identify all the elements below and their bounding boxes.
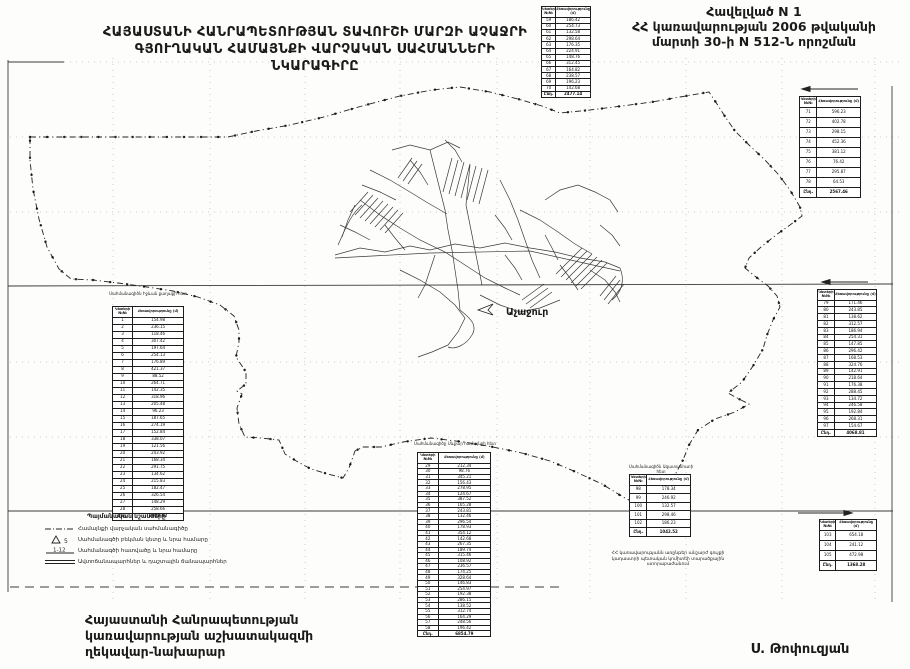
right-small-table-caption: Սահմանագիծն Ազատամուտի հետ	[625, 465, 697, 474]
distance-cell: 295.87	[817, 167, 861, 177]
table-row: 84254.31	[818, 334, 877, 341]
distance-cell: 264.71	[133, 380, 184, 387]
annex-line3: մարտի 30-ի N 512-Ն որոշման	[600, 34, 908, 49]
point-number-cell: Կետերի №№	[113, 307, 133, 318]
table-row: 99246.92	[630, 494, 691, 503]
point-number-cell: Ընդ.	[818, 429, 835, 436]
table-row: 25182.47	[113, 485, 184, 492]
point-number-cell: Կետերի №№	[800, 97, 817, 108]
point-number-cell: Կետերի №№	[820, 520, 836, 531]
point-number-cell: 87	[818, 354, 835, 361]
distance-cell: 268.31	[834, 416, 876, 423]
coordinate-table-right-upper: Կետերի №№Հեռավորությունը (մ)71596.237240…	[799, 96, 861, 198]
distance-cell: 288.45	[834, 388, 876, 395]
annex-reference: Հավելված N 1 ՀՀ կառավարության 2006 թվակա…	[600, 4, 908, 49]
table-row: 988.52	[113, 373, 184, 380]
table-row: Ընդ.1368.28	[820, 560, 877, 570]
coordinate-table-top-center: Կետերի №№Հեռավորությունը (մ)59186.426025…	[541, 6, 591, 98]
table-row: 86296.42	[818, 348, 877, 355]
distance-cell: Հեռավորությունը (մ)	[133, 307, 184, 318]
point-number-cell: Ընդ.	[630, 528, 647, 537]
coordinate-table: Կետերի №№Հեռավորությունը (մ)71596.237240…	[799, 96, 861, 198]
point-number-cell: 78	[800, 177, 817, 187]
distance-cell: Հեռավորությունը (մ)	[556, 7, 591, 18]
coordinate-table: Կետերի №№Հեռավորությունը (մ)103654.18104…	[819, 519, 877, 571]
point-number-cell: Ընդ.	[800, 187, 817, 197]
point-number-cell: 7	[113, 359, 133, 366]
table-row: Ընդ.6854.79	[418, 631, 491, 637]
point-number-cell: 9	[113, 373, 133, 380]
distance-cell: 142.91	[834, 368, 876, 375]
point-number-cell: 74	[800, 137, 817, 147]
distance-cell: 168.34	[133, 457, 184, 464]
table-row: 10264.71	[113, 380, 184, 387]
table-row: 26326.54	[113, 492, 184, 499]
point-number-cell: 93	[818, 395, 835, 402]
distance-cell: 324.76	[834, 361, 876, 368]
table-row: 95192.84	[818, 409, 877, 416]
coordinate-table-right-mid: Կետերի №№Հեռավորությունը (մ)79171.468024…	[817, 289, 877, 437]
point-number-cell: Կետերի №№	[818, 290, 835, 301]
table-row: 80243.85	[818, 307, 877, 314]
point-number-cell: 89	[818, 368, 835, 375]
distance-cell: 236.15	[133, 324, 184, 331]
distance-cell: 326.54	[133, 492, 184, 499]
distance-cell: 291.75	[133, 464, 184, 471]
table-row: 18338.07	[113, 436, 184, 443]
svg-text:5: 5	[64, 538, 68, 544]
table-row: 81138.62	[818, 314, 877, 321]
distance-cell: 1042.52	[647, 528, 691, 537]
page-title-line1: ՀԱՅԱՍՏԱՆԻ ՀԱՆՐԱՊԵՏՈՒԹՅԱՆ ՏԱՎՈՒՇԻ ՄԱՐԶԻ Ա…	[95, 24, 535, 41]
table-row: 75381.12	[800, 147, 861, 157]
distance-cell: Հեռավորությունը (մ)	[647, 475, 691, 486]
distance-cell: Հեռավորությունը (մ)	[834, 290, 876, 301]
village-label: Աչաջուր	[506, 307, 548, 318]
distance-cell: 64.53	[817, 177, 861, 187]
distance-cell: 1368.28	[836, 560, 877, 570]
distance-cell: 132.57	[647, 502, 691, 511]
point-number-cell: 85	[818, 341, 835, 348]
table-header-row: Կետերի №№Հեռավորությունը (մ)	[818, 290, 877, 301]
coordinate-table: Կետերի №№Հեռավորությունը (մ)79171.468024…	[817, 289, 877, 437]
distance-cell: 218.64	[834, 375, 876, 382]
distance-cell: 121.56	[133, 443, 184, 450]
distance-cell: 118.46	[133, 331, 184, 338]
distance-cell: 187.65	[133, 415, 184, 422]
point-number-cell: 80	[818, 307, 835, 314]
distance-cell: 296.42	[834, 348, 876, 355]
distance-cell: 76.42	[817, 157, 861, 167]
point-number-cell: 5	[113, 345, 133, 352]
legend-item-label: Սահմանագծի բեկման կետը և նրա համարը	[78, 537, 208, 543]
table-row: 98178.34	[630, 485, 691, 494]
table-row: 93134.72	[818, 395, 877, 402]
distance-cell: 2567.46	[817, 187, 861, 197]
table-row: 90218.64	[818, 375, 877, 382]
point-number-cell: 72	[800, 117, 817, 127]
distance-cell: 138.62	[834, 314, 876, 321]
point-number-cell: 11	[113, 387, 133, 394]
coordinate-table-bottom-right: Կետերի №№Հեռավորությունը (մ)103654.18104…	[819, 519, 877, 571]
table-row: 7176.89	[113, 359, 184, 366]
distance-cell: 154.98	[133, 317, 184, 324]
point-number-cell: 84	[818, 334, 835, 341]
distance-cell: 205.48	[133, 401, 184, 408]
point-number-cell: 4	[113, 338, 133, 345]
point-number-cell: Կետերի №№	[542, 7, 556, 18]
table-row: 88324.76	[818, 361, 877, 368]
point-number-cell: 73	[800, 127, 817, 137]
point-number-cell: 91	[818, 382, 835, 389]
table-row: 1154.98	[113, 317, 184, 324]
point-number-cell: 3	[113, 331, 133, 338]
note-line3: ստորաբաժանում	[598, 562, 738, 568]
legend-item-roads: Ավտոճանապարհներ և դաշտային ճանապարհներ	[42, 556, 292, 567]
distance-cell: Հեռավորությունը (մ)	[438, 453, 490, 464]
point-number-cell: 102	[630, 519, 647, 528]
distance-cell: 197.64	[133, 345, 184, 352]
page-title: ՀԱՅԱՍՏԱՆԻ ՀԱՆՐԱՊԵՏՈՒԹՅԱՆ ՏԱՎՈՒՇԻ ՄԱՐԶԻ Ա…	[95, 24, 535, 75]
settlement-area	[335, 140, 624, 357]
distance-cell: 421.37	[133, 366, 184, 373]
distance-cell: 134.72	[834, 395, 876, 402]
note-line1: ՀՀ կառավարությանն առընթեր անշարժ գույքի	[598, 551, 738, 557]
table-header-row: Կետերի №№Հեռավորությունը (մ)	[418, 453, 491, 464]
table-row: 24215.83	[113, 478, 184, 485]
distance-cell: 176.38	[834, 382, 876, 389]
point-number-cell: 98	[630, 485, 647, 494]
segment-numbers-icon: 1-12	[42, 546, 78, 555]
table-row: 74452.36	[800, 137, 861, 147]
table-row: 1496.23	[113, 408, 184, 415]
distance-cell: 298.15	[817, 127, 861, 137]
point-number-cell: Ընդ.	[820, 560, 836, 570]
table-row: 104241.12	[820, 540, 877, 550]
hatch-cluster-west	[398, 158, 422, 184]
village-marker	[478, 304, 493, 315]
signatory-title: Հայաստանի Հանրապետության կառավարության ա…	[85, 612, 365, 660]
point-number-cell: 83	[818, 327, 835, 334]
point-number-cell: 16	[113, 422, 133, 429]
point-number-cell: 88	[818, 361, 835, 368]
legend-item-turning-point: 5 Սահմանագծի բեկման կետը և նրա համարը	[42, 534, 292, 545]
distance-cell: Հեռավորությունը (մ)	[817, 97, 861, 108]
table-row: Ընդ.2567.46	[800, 187, 861, 197]
distance-cell: 307.42	[133, 338, 184, 345]
distance-cell: 176.89	[133, 359, 184, 366]
distance-cell: 2477.14	[556, 91, 591, 97]
distance-cell: 274.19	[133, 422, 184, 429]
table-row: 4307.42	[113, 338, 184, 345]
map-legend: Պայմանական նշանները Համայնքի վարչական սա…	[42, 513, 292, 567]
table-row: 85147.85	[818, 341, 877, 348]
distance-cell: 318.96	[133, 394, 184, 401]
point-number-cell: 20	[113, 450, 133, 457]
coordinate-table-bottom-middle: Կետերի №№Հեռավորությունը (մ)29212.343098…	[417, 452, 491, 637]
signatory-title-line1: Հայաստանի Հանրապետության	[85, 612, 365, 628]
table-row: 6254.13	[113, 352, 184, 359]
point-number-cell: 96	[818, 416, 835, 423]
table-row: 16274.19	[113, 422, 184, 429]
distance-cell: 142.35	[133, 387, 184, 394]
distance-cell: 182.47	[133, 485, 184, 492]
svg-text:1-12: 1-12	[53, 548, 65, 554]
distance-cell: 654.18	[836, 530, 877, 540]
table-row: 92288.45	[818, 388, 877, 395]
distance-cell: 246.58	[834, 402, 876, 409]
distance-cell: 596.23	[817, 107, 861, 117]
distance-cell: 148.29	[133, 499, 184, 506]
distance-cell: 4068.81	[834, 429, 876, 436]
point-number-cell: 21	[113, 457, 133, 464]
legend-item-label: Ավտոճանապարհներ և դաշտային ճանապարհներ	[78, 559, 227, 565]
point-number-cell: 75	[800, 147, 817, 157]
table-header-row: Կետերի №№Հեռավորությունը (մ)	[542, 7, 591, 18]
legend-item-segment: 1-12 Սահմանագծի հատվածը և նրա համարը	[42, 545, 292, 556]
distance-cell: 152.84	[133, 429, 184, 436]
table-row: 101298.46	[630, 511, 691, 520]
cadastre-note: ՀՀ կառավարությանն առընթեր անշարժ գույքի …	[598, 551, 738, 568]
table-row: 22291.75	[113, 464, 184, 471]
distance-cell: 171.46	[834, 300, 876, 307]
distance-cell: 402.78	[817, 117, 861, 127]
point-number-cell: 12	[113, 394, 133, 401]
point-number-cell: 19	[113, 443, 133, 450]
table-row: 2236.15	[113, 324, 184, 331]
distance-cell: 246.92	[647, 494, 691, 503]
distance-cell: 192.84	[834, 409, 876, 416]
table-row: 102186.23	[630, 519, 691, 528]
table-row: 17152.84	[113, 429, 184, 436]
scanned-map-document: { "header": { "title_line1": "ՀԱՅԱՍՏԱՆԻ …	[0, 0, 910, 669]
table-header-row: Կետերի №№Հեռավորությունը (մ)	[113, 307, 184, 318]
point-number-cell: Կետերի №№	[630, 475, 647, 486]
point-number-cell: 90	[818, 375, 835, 382]
distance-cell: 154.67	[834, 422, 876, 429]
point-number-cell: 14	[113, 408, 133, 415]
table-row: 27148.29	[113, 499, 184, 506]
table-row: 8421.37	[113, 366, 184, 373]
point-number-cell: 100	[630, 502, 647, 511]
double-line-icon	[42, 559, 78, 565]
coordinate-table-right-small: Կետերի №№Հեռավորությունը (մ)98178.349924…	[629, 474, 691, 537]
left-table-caption: Սահմանագիծն Իջևան քաղաքի հետ	[106, 292, 190, 297]
signatory-title-line3: ղեկավար-նախարար	[85, 644, 365, 660]
table-row: 94246.58	[818, 402, 877, 409]
point-number-cell: 71	[800, 107, 817, 117]
distance-cell: 168.53	[834, 354, 876, 361]
point-number-cell: 8	[113, 366, 133, 373]
point-number-cell: 76	[800, 157, 817, 167]
distance-cell: 186.94	[834, 327, 876, 334]
bottom-table-caption: Սահմանագիծը Սևքար համայնքի հետ	[413, 442, 497, 447]
legend-item-label: Համայնքի վարչական սահմանագիծը	[78, 526, 188, 532]
triangle-point-icon: 5	[42, 535, 78, 544]
table-row: 97154.67	[818, 422, 877, 429]
table-row: 83186.94	[818, 327, 877, 334]
table-row: 7864.53	[800, 177, 861, 187]
point-number-cell: Կետերի №№	[418, 453, 439, 464]
point-number-cell: 101	[630, 511, 647, 520]
distance-cell: 88.52	[133, 373, 184, 380]
distance-cell: 254.13	[133, 352, 184, 359]
point-number-cell: 24	[113, 478, 133, 485]
point-number-cell: 97	[818, 422, 835, 429]
distance-cell: 178.34	[647, 485, 691, 494]
point-number-cell: Ընդ.	[418, 631, 439, 637]
point-number-cell: 1	[113, 317, 133, 324]
distance-cell: 134.62	[133, 471, 184, 478]
dash-dot-line-icon	[42, 526, 78, 532]
distance-cell: 96.23	[133, 408, 184, 415]
distance-cell: 186.23	[647, 519, 691, 528]
table-row: 103654.18	[820, 530, 877, 540]
distance-cell: 254.31	[834, 334, 876, 341]
distance-cell: 243.85	[834, 307, 876, 314]
coordinate-table: Կետերի №№Հեռավորությունը (մ)29212.343098…	[417, 452, 491, 637]
coordinate-table: Կետերի №№Հեռավորությունը (մ)59186.426025…	[541, 6, 591, 98]
table-row: 12318.96	[113, 394, 184, 401]
annex-line1: Հավելված N 1	[600, 4, 908, 19]
table-row: 3118.46	[113, 331, 184, 338]
table-row: 15187.65	[113, 415, 184, 422]
point-number-cell: Ընդ.	[542, 91, 556, 97]
point-number-cell: 6	[113, 352, 133, 359]
table-row: 91176.38	[818, 382, 877, 389]
table-row: 13205.48	[113, 401, 184, 408]
distance-cell: 312.57	[834, 320, 876, 327]
annex-line2: ՀՀ կառավարության 2006 թվականի	[600, 19, 908, 34]
table-row: 105472.98	[820, 550, 877, 560]
point-number-cell: 13	[113, 401, 133, 408]
table-row: Ընդ.2477.14	[542, 91, 591, 97]
table-row: Ընդ.4068.81	[818, 429, 877, 436]
table-row: Ընդ.1042.52	[630, 528, 691, 537]
distance-cell: 381.12	[817, 147, 861, 157]
point-number-cell: 23	[113, 471, 133, 478]
distance-cell: 298.46	[647, 511, 691, 520]
table-row: 100132.57	[630, 502, 691, 511]
point-number-cell: 95	[818, 409, 835, 416]
legend-item-label: Սահմանագծի հատվածը և նրա համարը	[78, 548, 197, 554]
point-number-cell: 105	[820, 550, 836, 560]
point-number-cell: 26	[113, 492, 133, 499]
distance-cell: 338.07	[133, 436, 184, 443]
point-number-cell: 27	[113, 499, 133, 506]
table-row: 20243.92	[113, 450, 184, 457]
point-number-cell: 15	[113, 415, 133, 422]
point-number-cell: 22	[113, 464, 133, 471]
point-number-cell: 99	[630, 494, 647, 503]
distance-cell: Հեռավորությունը (մ)	[836, 520, 877, 531]
distance-cell: 6854.79	[438, 631, 490, 637]
table-header-row: Կետերի №№Հեռավորությունը (մ)	[800, 97, 861, 108]
table-row: 87168.53	[818, 354, 877, 361]
table-row: 21168.34	[113, 457, 184, 464]
distance-cell: 452.36	[817, 137, 861, 147]
point-number-cell: 10	[113, 380, 133, 387]
point-number-cell: 94	[818, 402, 835, 409]
page-title-line2: ԳՅՈՒՂԱԿԱՆ ՀԱՄԱՅՆՔԻ ՎԱՐՉԱԿԱՆ ՍԱՀՄԱՆՆԵՐԻ Ն…	[95, 41, 535, 75]
table-row: 77295.87	[800, 167, 861, 177]
table-row: 96268.31	[818, 416, 877, 423]
point-number-cell: 81	[818, 314, 835, 321]
signature-name: Ս. Թոփուզյան	[700, 642, 900, 657]
table-row: 73298.15	[800, 127, 861, 137]
point-number-cell: 82	[818, 320, 835, 327]
table-header-row: Կետերի №№Հեռավորությունը (մ)	[630, 475, 691, 486]
table-header-row: Կետերի №№Հեռավորությունը (մ)	[820, 520, 877, 531]
point-number-cell: 25	[113, 485, 133, 492]
point-number-cell: 104	[820, 540, 836, 550]
distance-cell: 241.12	[836, 540, 877, 550]
point-number-cell: 86	[818, 348, 835, 355]
point-number-cell: 2	[113, 324, 133, 331]
distance-cell: 147.85	[834, 341, 876, 348]
legend-title: Պայմանական նշանները	[87, 513, 292, 520]
distance-cell: 472.98	[836, 550, 877, 560]
hatch-cluster-top	[443, 158, 488, 204]
table-row: 23134.62	[113, 471, 184, 478]
table-row: 19121.56	[113, 443, 184, 450]
distance-cell: 243.92	[133, 450, 184, 457]
point-number-cell: 77	[800, 167, 817, 177]
table-row: 7676.42	[800, 157, 861, 167]
point-number-cell: 79	[818, 300, 835, 307]
point-number-cell: 103	[820, 530, 836, 540]
table-row: 71596.23	[800, 107, 861, 117]
point-number-cell: 92	[818, 388, 835, 395]
table-row: 82312.57	[818, 320, 877, 327]
distance-cell: 215.83	[133, 478, 184, 485]
table-row: 79171.46	[818, 300, 877, 307]
coordinate-table-left: Կետերի №№Հեռավորությունը (մ)1154.982236.…	[112, 306, 184, 521]
point-number-cell: 17	[113, 429, 133, 436]
point-number-cell: 18	[113, 436, 133, 443]
hatch-cluster-southeast	[522, 284, 552, 308]
table-row: 89142.91	[818, 368, 877, 375]
table-row: 5197.64	[113, 345, 184, 352]
coordinate-table: Կետերի №№Հեռավորությունը (մ)1154.982236.…	[112, 306, 184, 521]
table-row: 11142.35	[113, 387, 184, 394]
signatory-title-line2: կառավարության աշխատակազմի	[85, 628, 365, 644]
legend-item-boundary: Համայնքի վարչական սահմանագիծը	[42, 523, 292, 534]
coordinate-table: Կետերի №№Հեռավորությունը (մ)98178.349924…	[629, 474, 691, 537]
table-row: 72402.78	[800, 117, 861, 127]
